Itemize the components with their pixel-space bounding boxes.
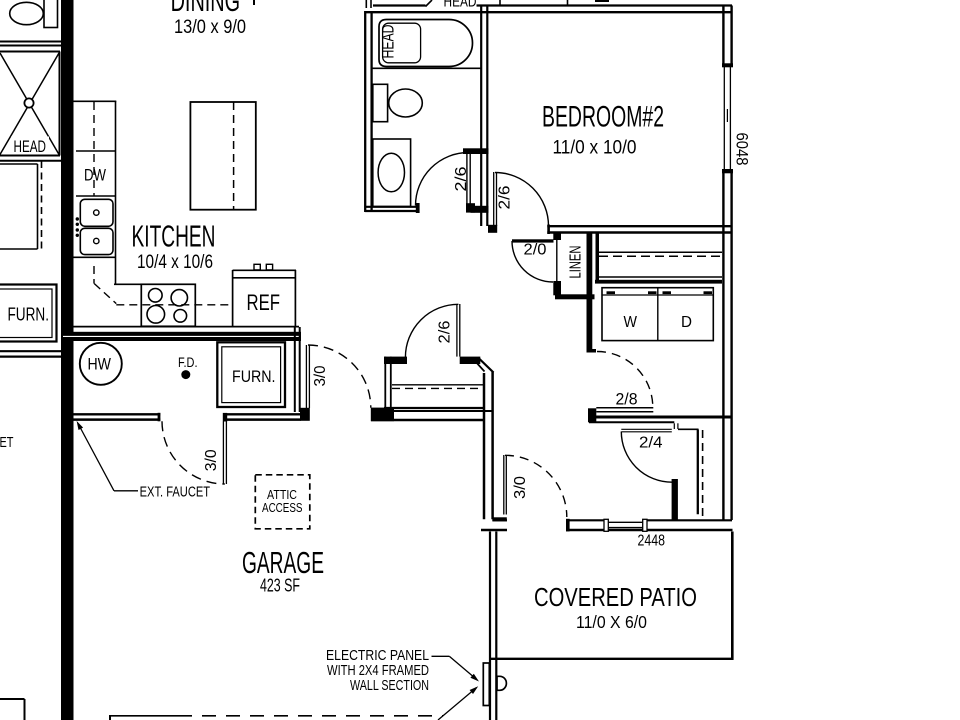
svg-text:2/0: 2/0	[524, 242, 547, 259]
svg-text:3/0: 3/0	[203, 449, 220, 471]
svg-text:11/0 X 6/0: 11/0 X 6/0	[576, 612, 647, 632]
svg-text:2/6: 2/6	[437, 321, 454, 344]
svg-text:10/4 x 10/6: 10/4 x 10/6	[137, 252, 213, 273]
svg-text:WITH 2X4 FRAMED: WITH 2X4 FRAMED	[327, 663, 429, 679]
svg-text:HW: HW	[88, 356, 112, 374]
svg-text:2/6: 2/6	[453, 167, 470, 192]
svg-text:3/0: 3/0	[512, 476, 529, 499]
svg-text:2/6: 2/6	[497, 186, 514, 210]
svg-text:D: D	[681, 314, 692, 331]
svg-text:REF: REF	[247, 290, 281, 315]
svg-text:FURN.: FURN.	[8, 305, 50, 325]
svg-text:DINING: DINING	[171, 0, 241, 18]
svg-text:2448: 2448	[638, 533, 666, 550]
svg-text:KITCHEN: KITCHEN	[132, 219, 216, 254]
svg-text:ET: ET	[0, 434, 14, 451]
svg-text:2/4: 2/4	[639, 435, 663, 452]
svg-text:EXT. FAUCET: EXT. FAUCET	[140, 485, 211, 501]
svg-text:ELECTRIC PANEL: ELECTRIC PANEL	[326, 648, 429, 664]
svg-text:6048: 6048	[733, 133, 751, 166]
svg-text:BEDROOM#2: BEDROOM#2	[542, 101, 664, 134]
svg-text:FURN.: FURN.	[232, 367, 276, 386]
svg-text:HEAD: HEAD	[14, 137, 47, 156]
svg-text:HEAD: HEAD	[444, 0, 477, 11]
svg-text:HEAD: HEAD	[380, 24, 398, 58]
svg-text:ACCESS: ACCESS	[262, 501, 303, 515]
svg-text:W: W	[624, 314, 638, 331]
svg-text:F.D.: F.D.	[178, 354, 198, 370]
svg-text:13/0 x 9/0: 13/0 x 9/0	[174, 17, 246, 38]
svg-text:11/0 x 10/0: 11/0 x 10/0	[553, 138, 637, 159]
svg-text:3/0: 3/0	[312, 365, 329, 386]
svg-text:WALL SECTION: WALL SECTION	[350, 678, 429, 694]
svg-text:2/8: 2/8	[616, 390, 638, 409]
svg-text:423 SF: 423 SF	[260, 576, 300, 596]
svg-text:COVERED PATIO: COVERED PATIO	[534, 582, 697, 612]
svg-text:DW: DW	[84, 166, 106, 185]
svg-text:LINEN: LINEN	[568, 246, 585, 279]
